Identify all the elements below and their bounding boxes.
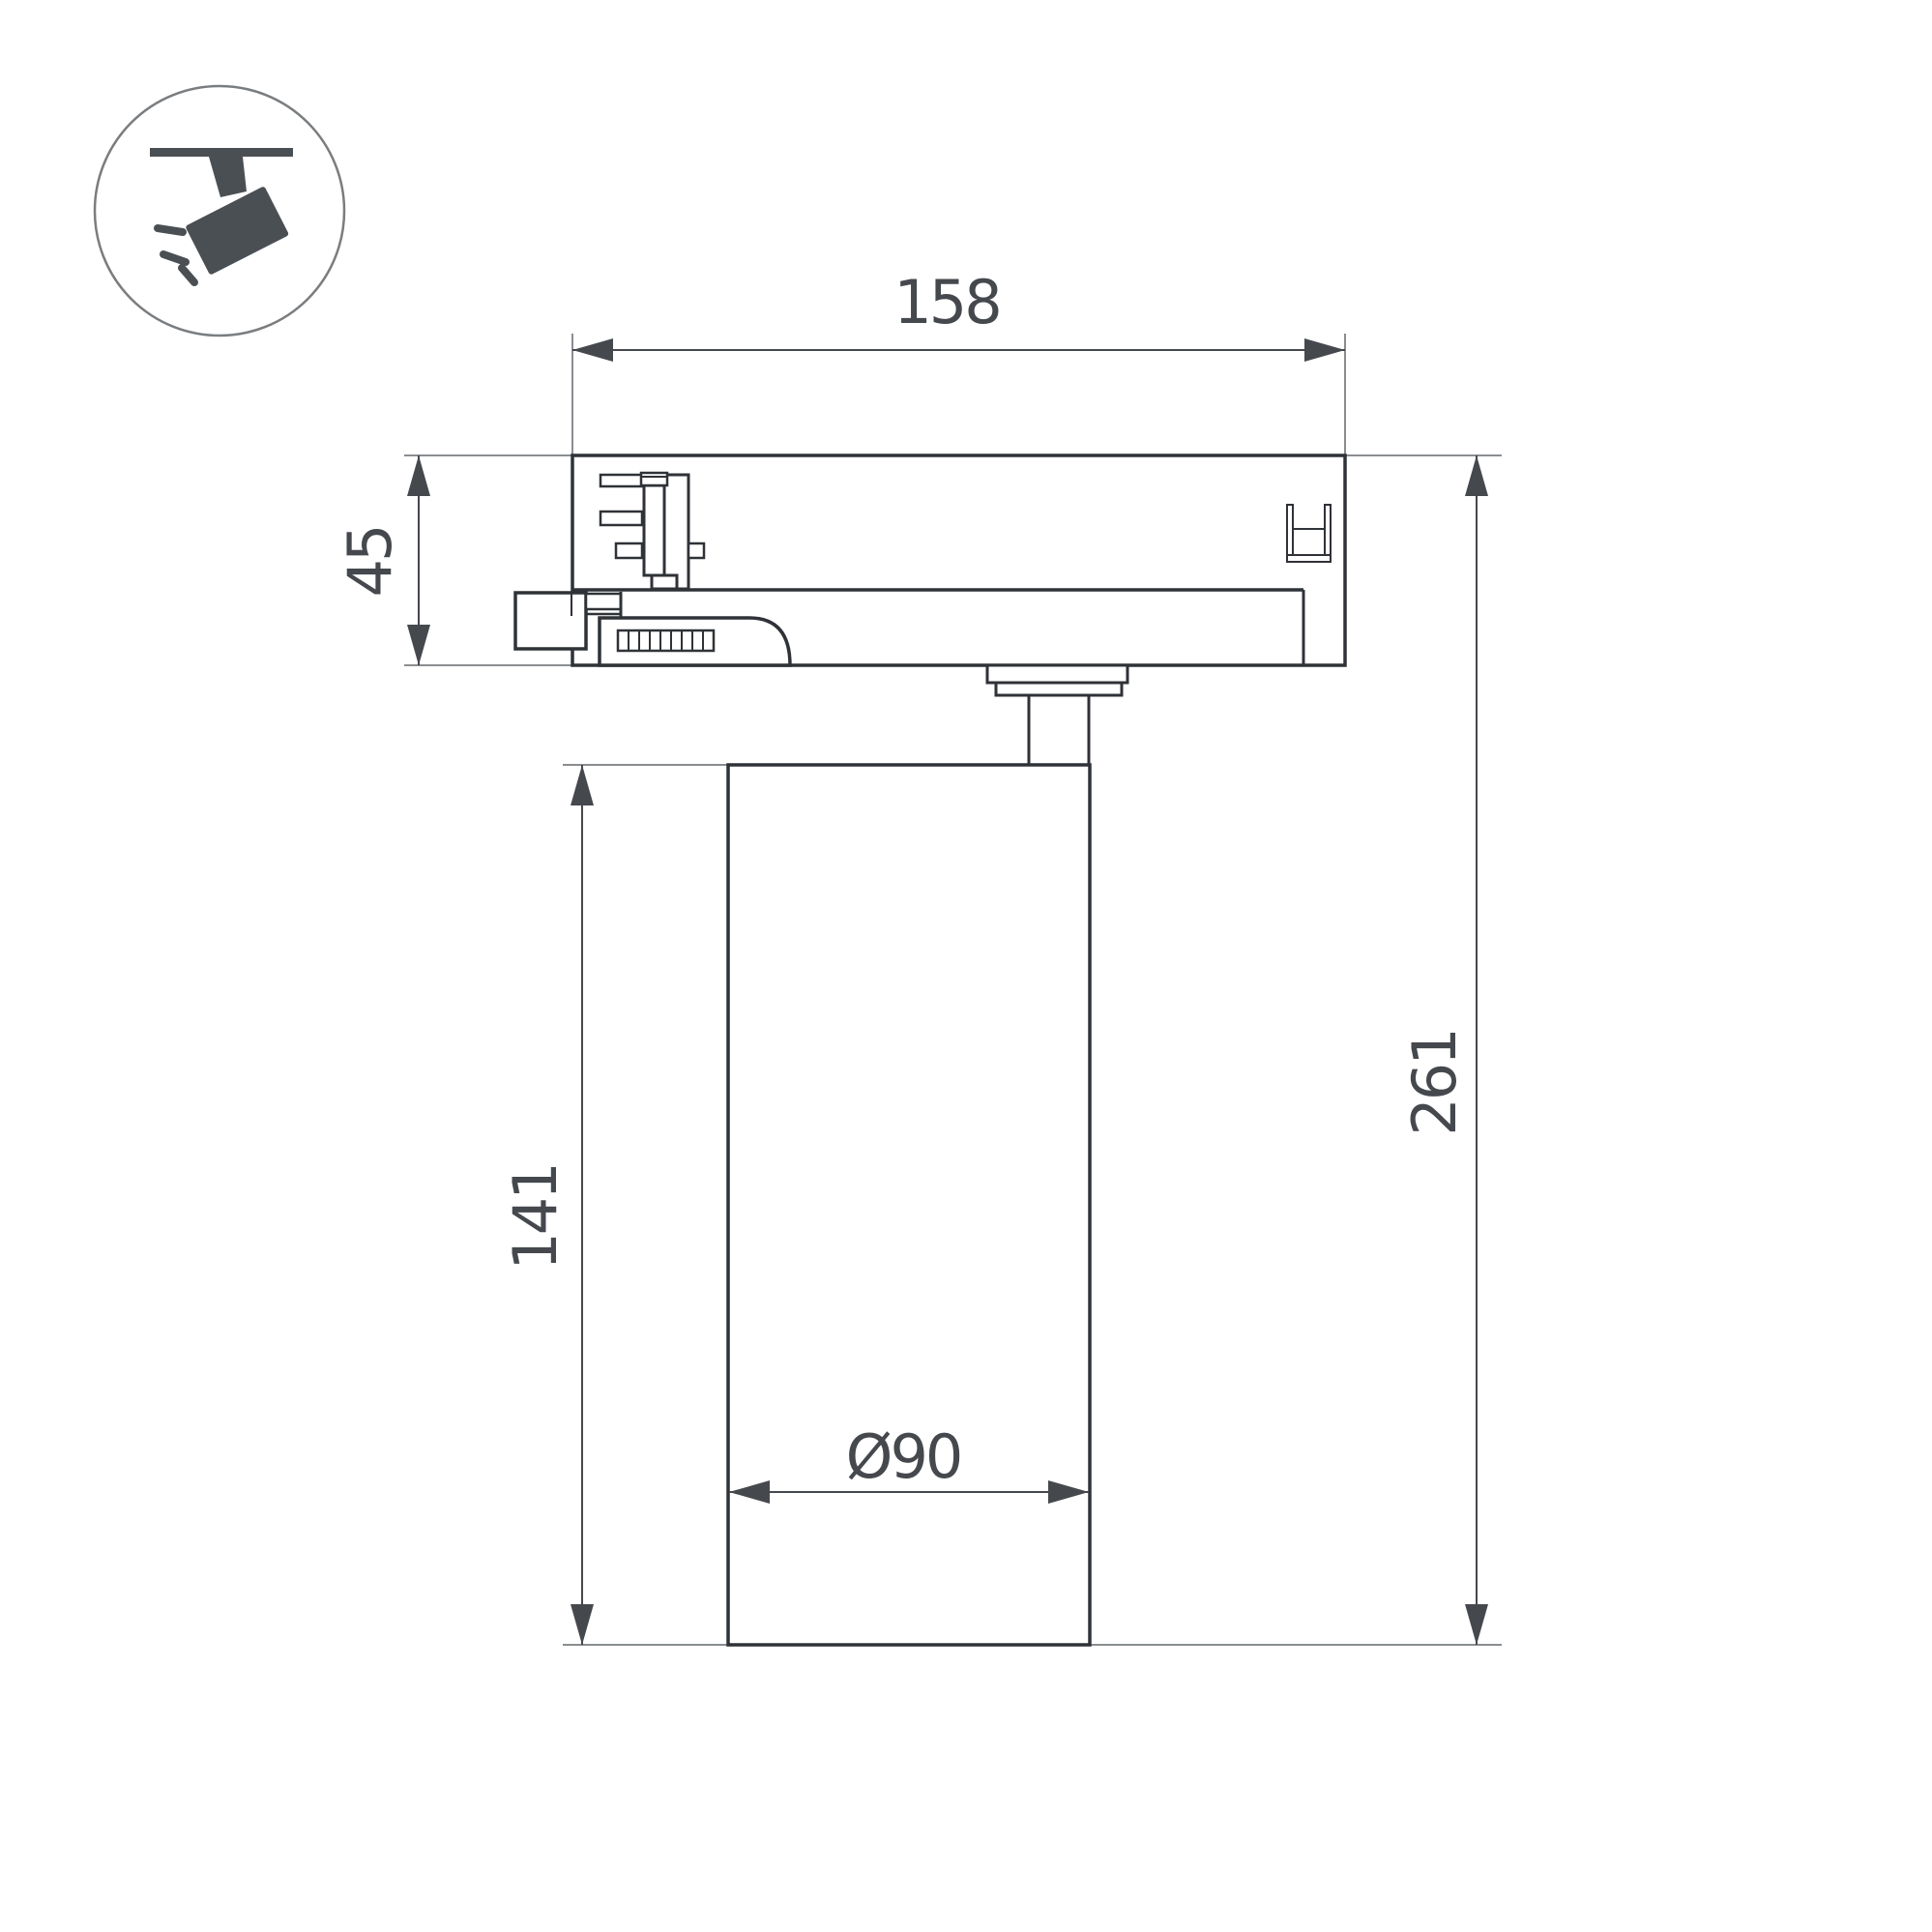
dim-261-label: 261 [1399, 1030, 1470, 1135]
dimension-adapter-height: 45 [335, 455, 430, 665]
dim-90-label: Ø90 [846, 1421, 961, 1492]
dimension-width-top: 158 [572, 267, 1345, 362]
dimension-total-height: 261 [1399, 455, 1488, 1645]
swivel-joint [987, 665, 1127, 765]
gear-housing [600, 618, 790, 665]
dim-158-label: 158 [893, 267, 999, 337]
track-spotlight-icon [95, 86, 344, 336]
dim-45-label: 45 [335, 527, 405, 598]
dimension-body-height: 141 [500, 765, 594, 1645]
vent-grille [618, 630, 714, 651]
locking-pin [644, 485, 664, 575]
icon-track-bar [150, 148, 293, 157]
latch [586, 594, 621, 609]
technical-drawing: 158 45 141 261 Ø90 [0, 0, 1932, 1932]
flange-lower [996, 683, 1122, 695]
flange-upper [987, 665, 1127, 683]
lamp-body [728, 765, 1090, 1645]
dim-141-label: 141 [500, 1164, 571, 1270]
track-adapter [515, 455, 1345, 665]
drawing-canvas: 158 45 141 261 Ø90 [0, 0, 1932, 1932]
